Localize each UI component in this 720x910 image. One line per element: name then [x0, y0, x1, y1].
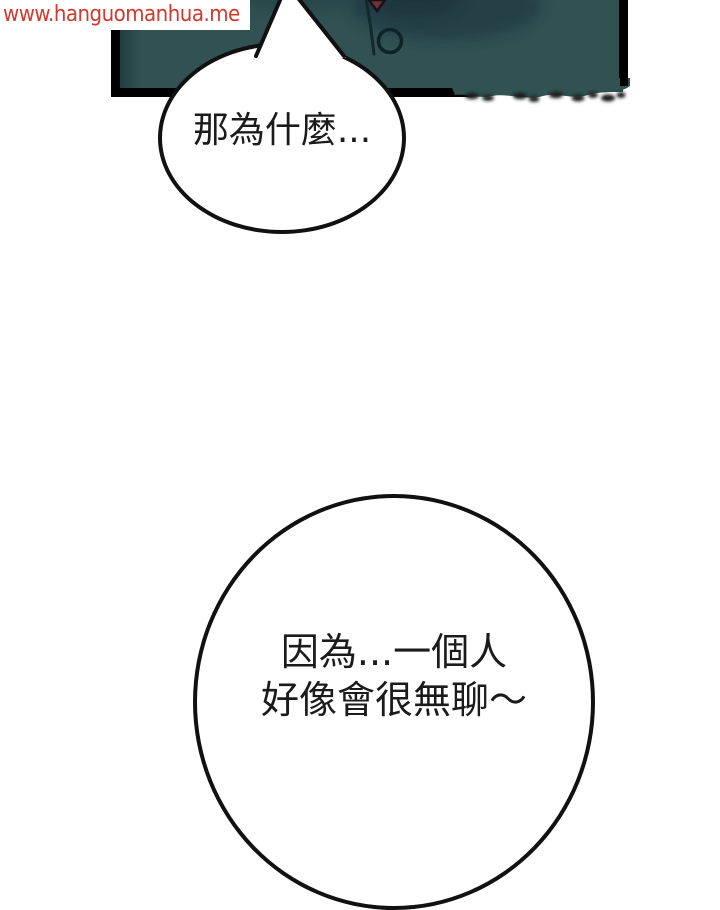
speech-bubble-top: 那為什麼... — [158, 42, 406, 234]
panel-border-right — [619, 0, 628, 86]
speech-bubble-top-text: 那為什麼... — [193, 101, 371, 153]
speech-bubble-bottom-line-2: 好像會很無聊～ — [197, 676, 591, 724]
speech-bubble-bottom-line-1: 因為...一個人 — [197, 628, 591, 676]
speech-bubble-bottom-text: 因為...一個人 好像會很無聊～ — [197, 628, 591, 724]
site-watermark: www.hanguomanhua.me — [0, 0, 250, 30]
shirt-frayed-edge — [452, 76, 630, 102]
speech-bubble-bottom: 因為...一個人 好像會很無聊～ — [193, 494, 595, 910]
